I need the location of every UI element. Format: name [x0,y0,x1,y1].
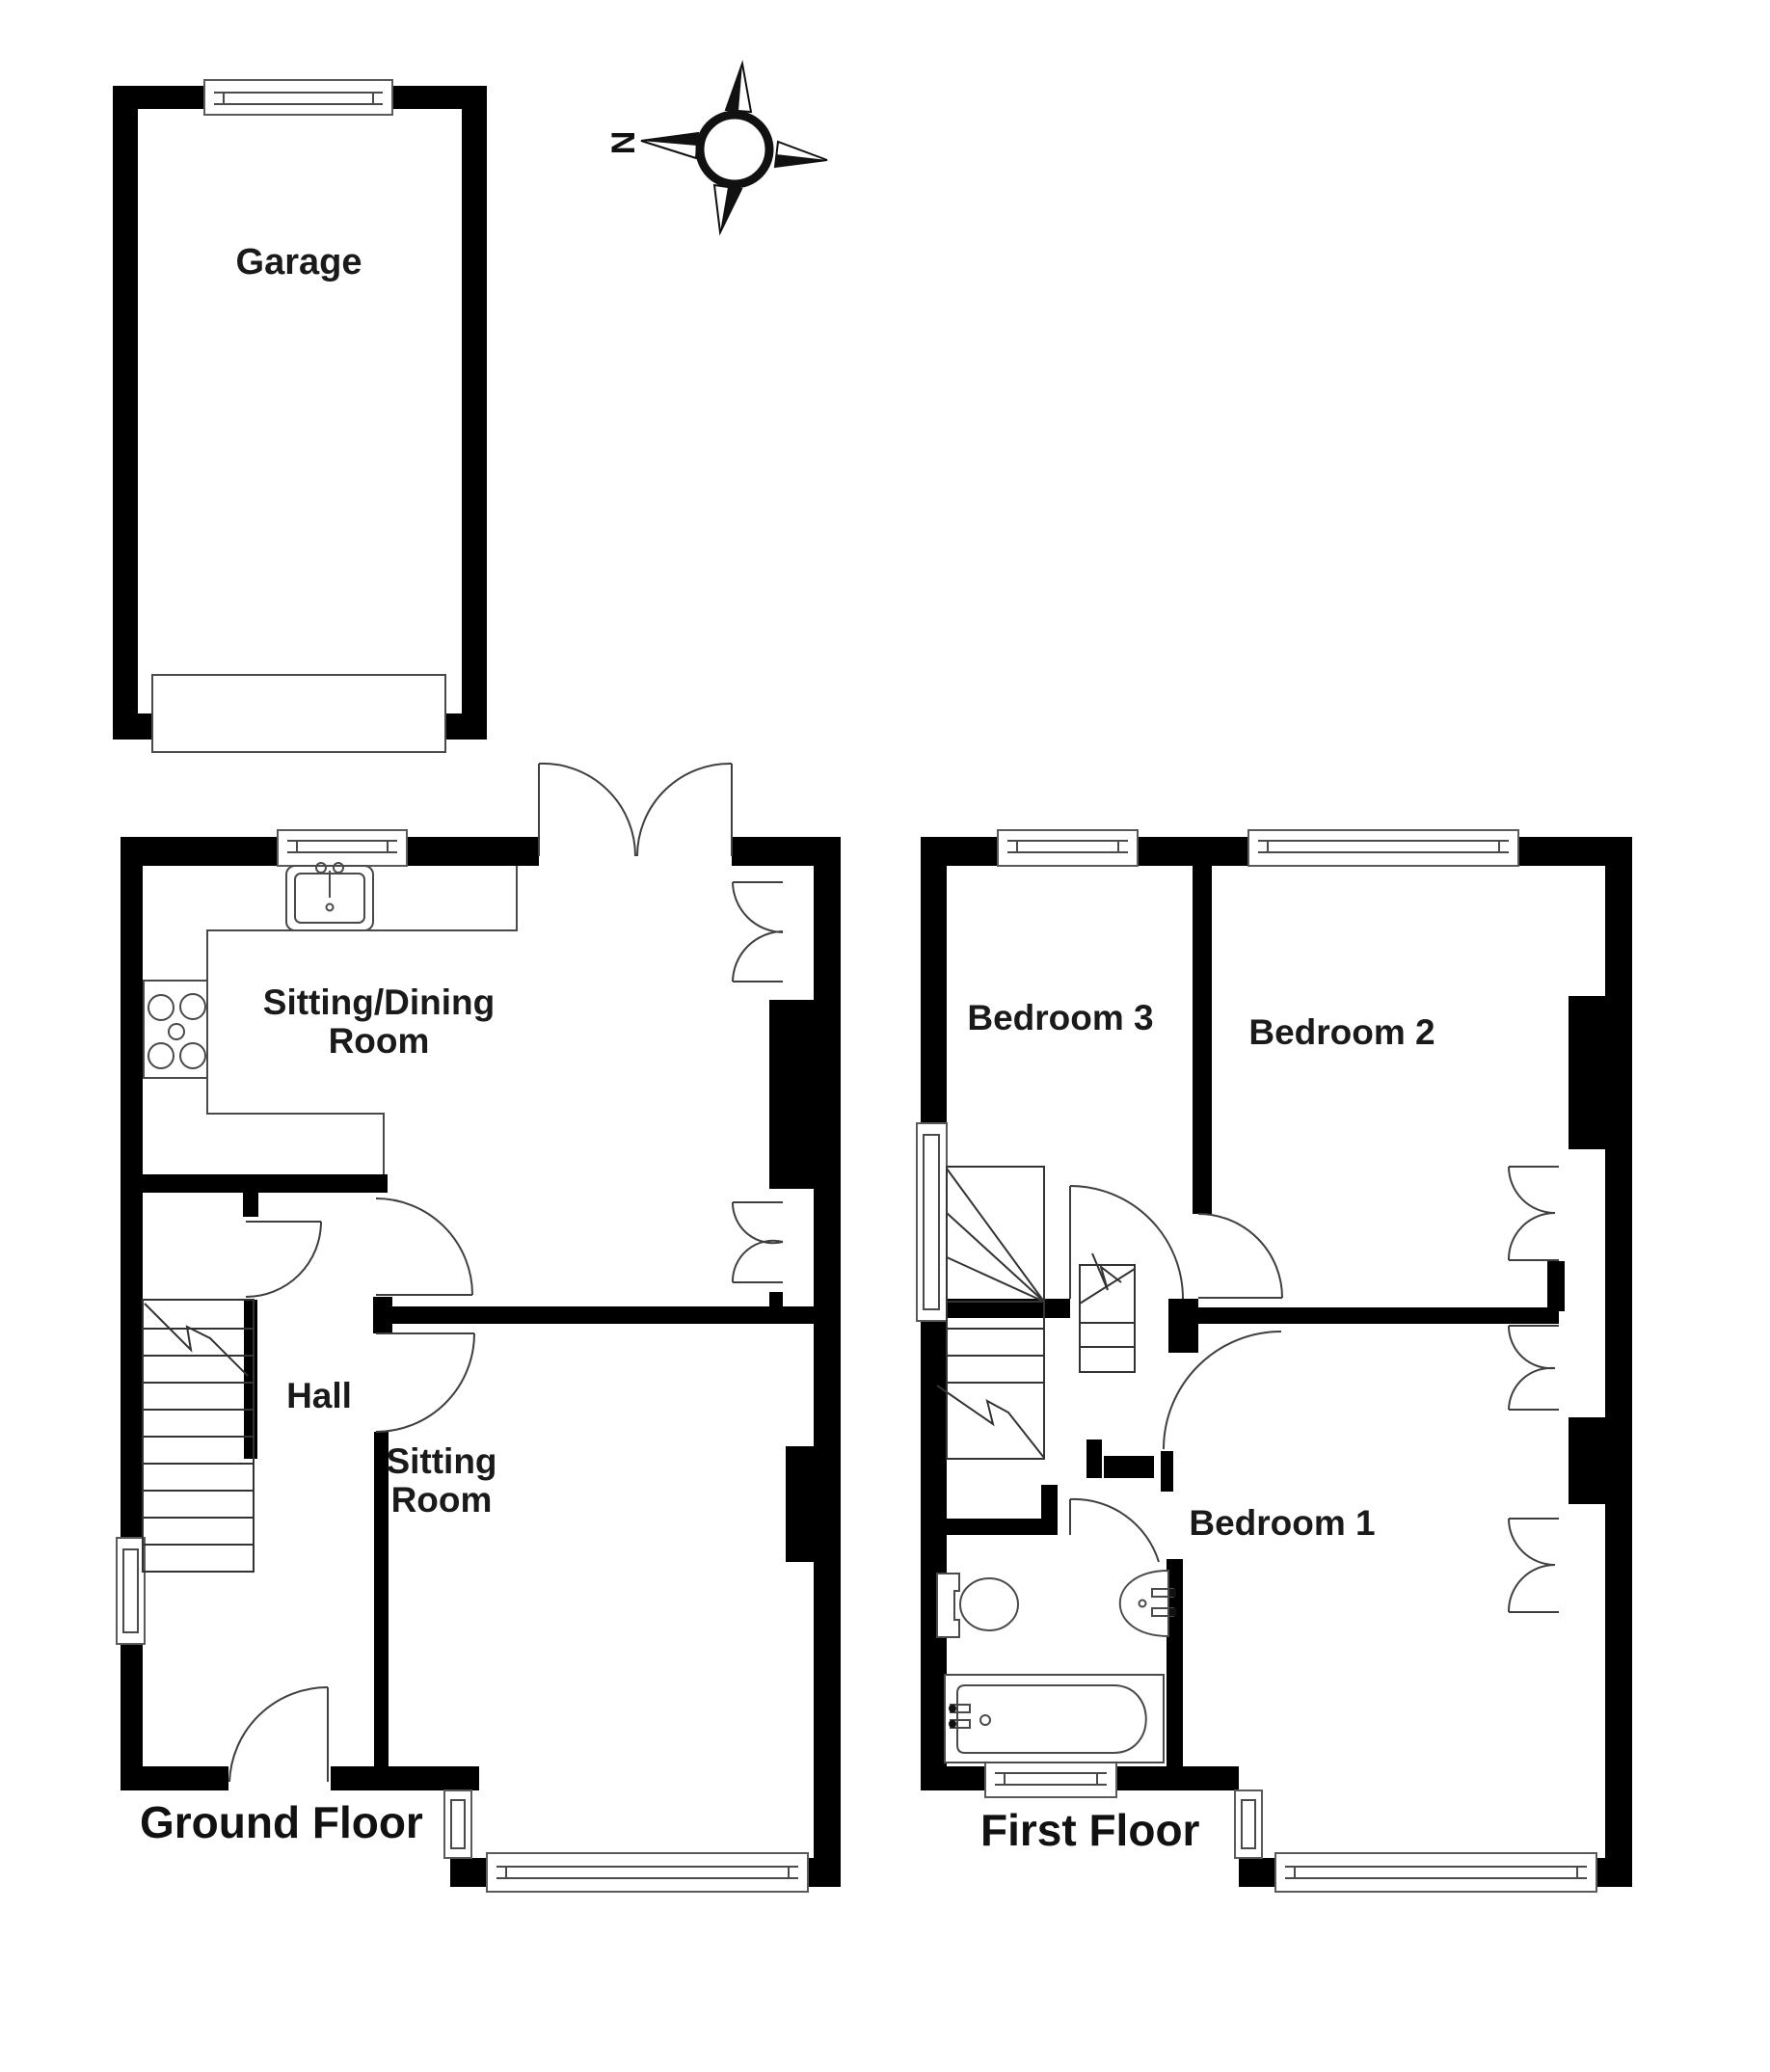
stairs-first-upper-flight [1080,1253,1135,1372]
stairs-ground [143,1300,254,1572]
toilet [937,1574,1018,1637]
floorplan-svg: Garage N [0,0,1770,2072]
door-hall-sitting-room [376,1333,474,1432]
bay-side-window-first [1235,1790,1262,1858]
ground-floor-plan: Sitting/Dining Room Hall Sitting Room Gr… [117,764,841,1892]
kitchen-hob [144,981,207,1078]
door-stairs-cupboard [246,1222,321,1297]
bay-window-ground [487,1853,808,1892]
compass-north-label: N [605,131,642,155]
garage-door [152,675,445,752]
first-floor-plan: Bedroom 3 Bedroom 2 Bedroom 1 First Floo… [917,830,1632,1892]
room-label-sitting-1: Sitting [386,1441,496,1481]
bedroom2-window [1248,830,1518,866]
room-label-sitting-dining-2: Room [329,1021,430,1061]
basin [1120,1571,1176,1636]
garage-window [204,80,392,115]
room-label-bedroom3: Bedroom 3 [967,998,1153,1037]
hall-window [117,1538,145,1644]
bathroom-window [985,1763,1116,1797]
kitchen-sink [286,863,373,930]
garage-plan: Garage [113,80,487,752]
bay-side-window-ground [444,1790,471,1858]
floor-label-first: First Floor [980,1805,1200,1855]
casement-window-bedroom1-lower [1509,1519,1559,1612]
room-label-bedroom1: Bedroom 1 [1189,1503,1375,1543]
room-label-sitting-dining-1: Sitting/Dining [263,982,495,1022]
compass-icon: N [605,64,827,232]
kitchen-window [278,830,407,866]
casement-window-ground-2 [733,1202,783,1282]
front-door [229,1687,328,1782]
door-bedroom2 [1198,1214,1282,1298]
room-label-garage: Garage [236,242,362,283]
bathtub [945,1675,1164,1763]
room-label-bedroom2: Bedroom 2 [1248,1012,1435,1052]
french-doors [539,764,732,856]
casement-window-ground-1 [733,882,783,982]
landing-window [917,1123,947,1321]
floor-label-ground: Ground Floor [140,1797,423,1847]
door-bathroom [1070,1499,1159,1562]
bay-window-first [1275,1853,1596,1892]
casement-window-bedroom1-upper [1509,1326,1559,1410]
door-hall-kitchen [376,1198,472,1295]
casement-window-bedroom2 [1509,1167,1559,1260]
room-label-hall: Hall [286,1376,352,1415]
bedroom3-window [998,830,1138,866]
door-bedroom3 [1070,1186,1183,1299]
floorplan-page: Garage N [0,0,1770,2072]
room-label-sitting-2: Room [391,1480,493,1520]
